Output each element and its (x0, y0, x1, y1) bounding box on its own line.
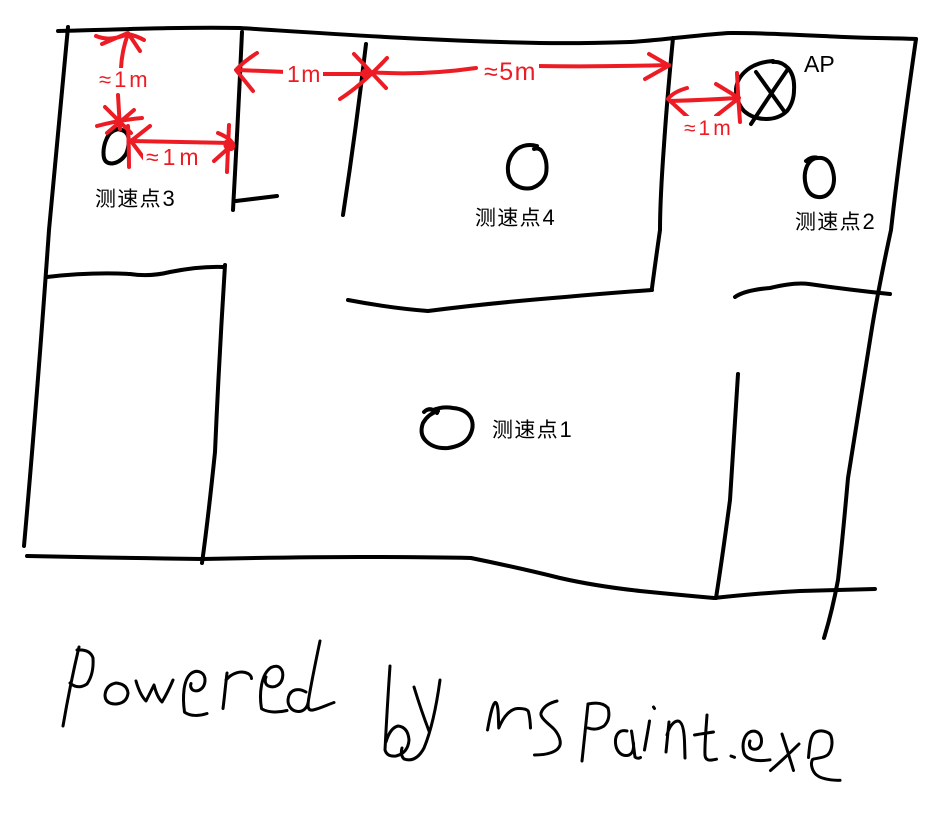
svg-text:1: 1 (560, 417, 572, 442)
svg-text:≈5m: ≈5m (484, 58, 537, 86)
svg-text:2: 2 (863, 209, 875, 234)
svg-text:1m: 1m (287, 61, 322, 87)
svg-text:AP: AP (804, 51, 835, 77)
svg-text:≈1m: ≈1m (684, 117, 734, 140)
svg-text:≈1m: ≈1m (99, 67, 151, 92)
svg-text:3: 3 (163, 186, 175, 211)
svg-text:≈1m: ≈1m (146, 144, 203, 170)
svg-text:4: 4 (543, 205, 555, 230)
